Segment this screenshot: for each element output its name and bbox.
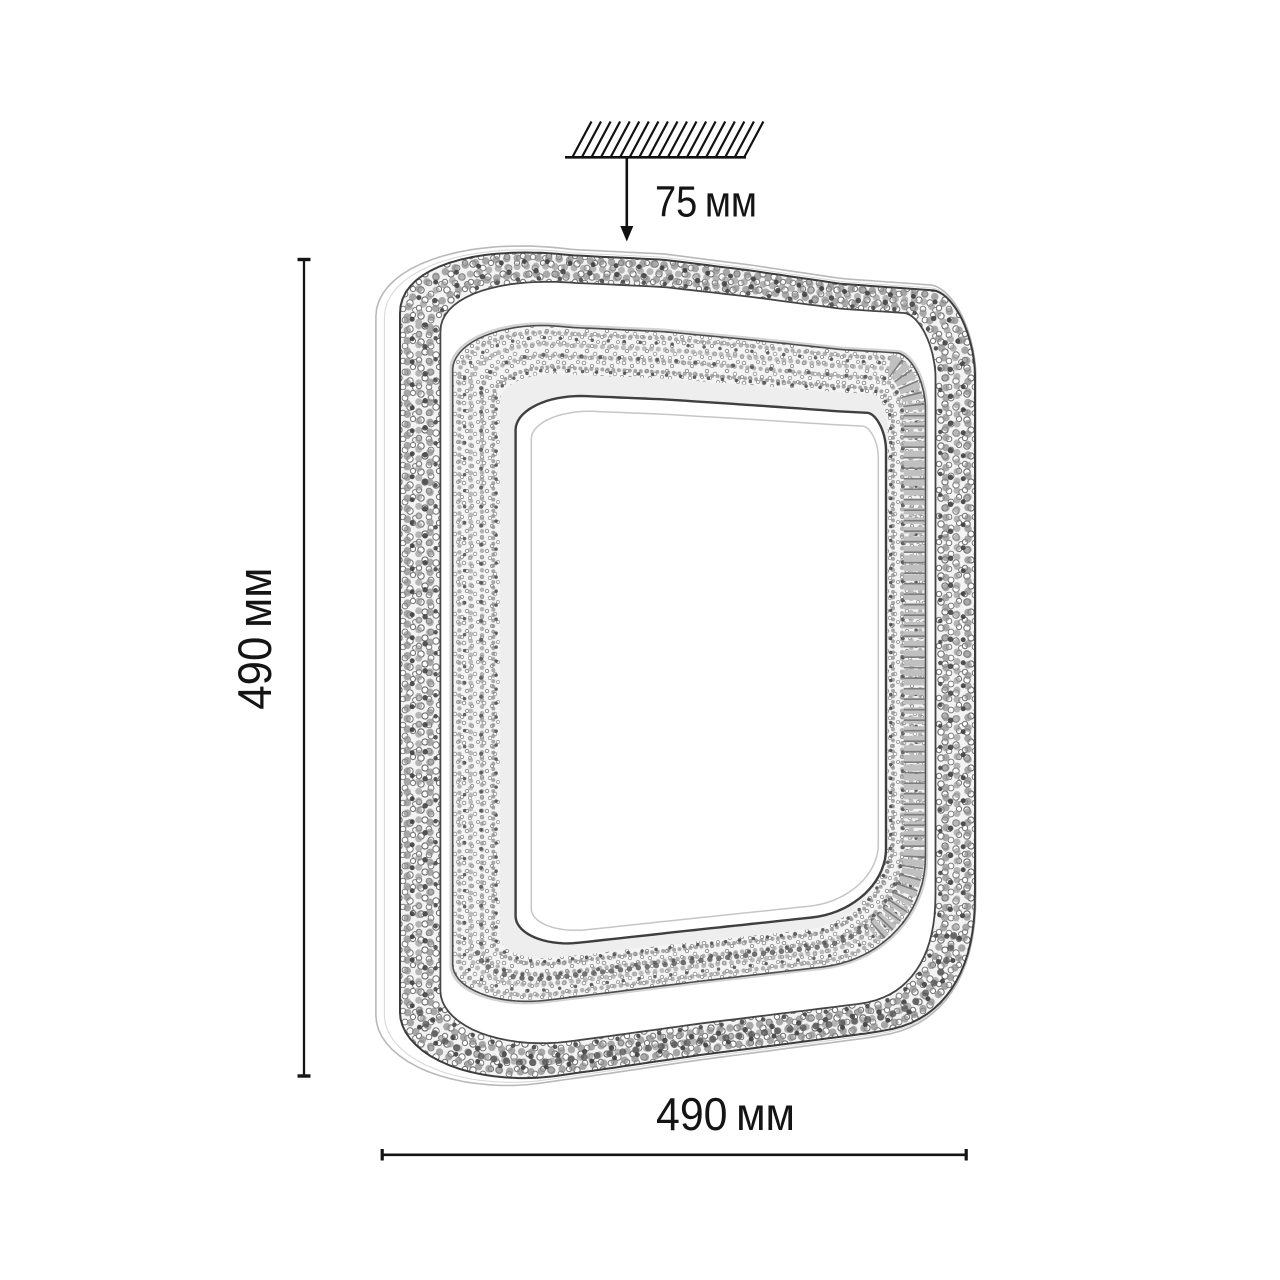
svg-text:490 мм: 490 мм xyxy=(656,1088,795,1140)
svg-text:75 мм: 75 мм xyxy=(655,178,757,227)
svg-text:490 мм: 490 мм xyxy=(228,568,281,710)
